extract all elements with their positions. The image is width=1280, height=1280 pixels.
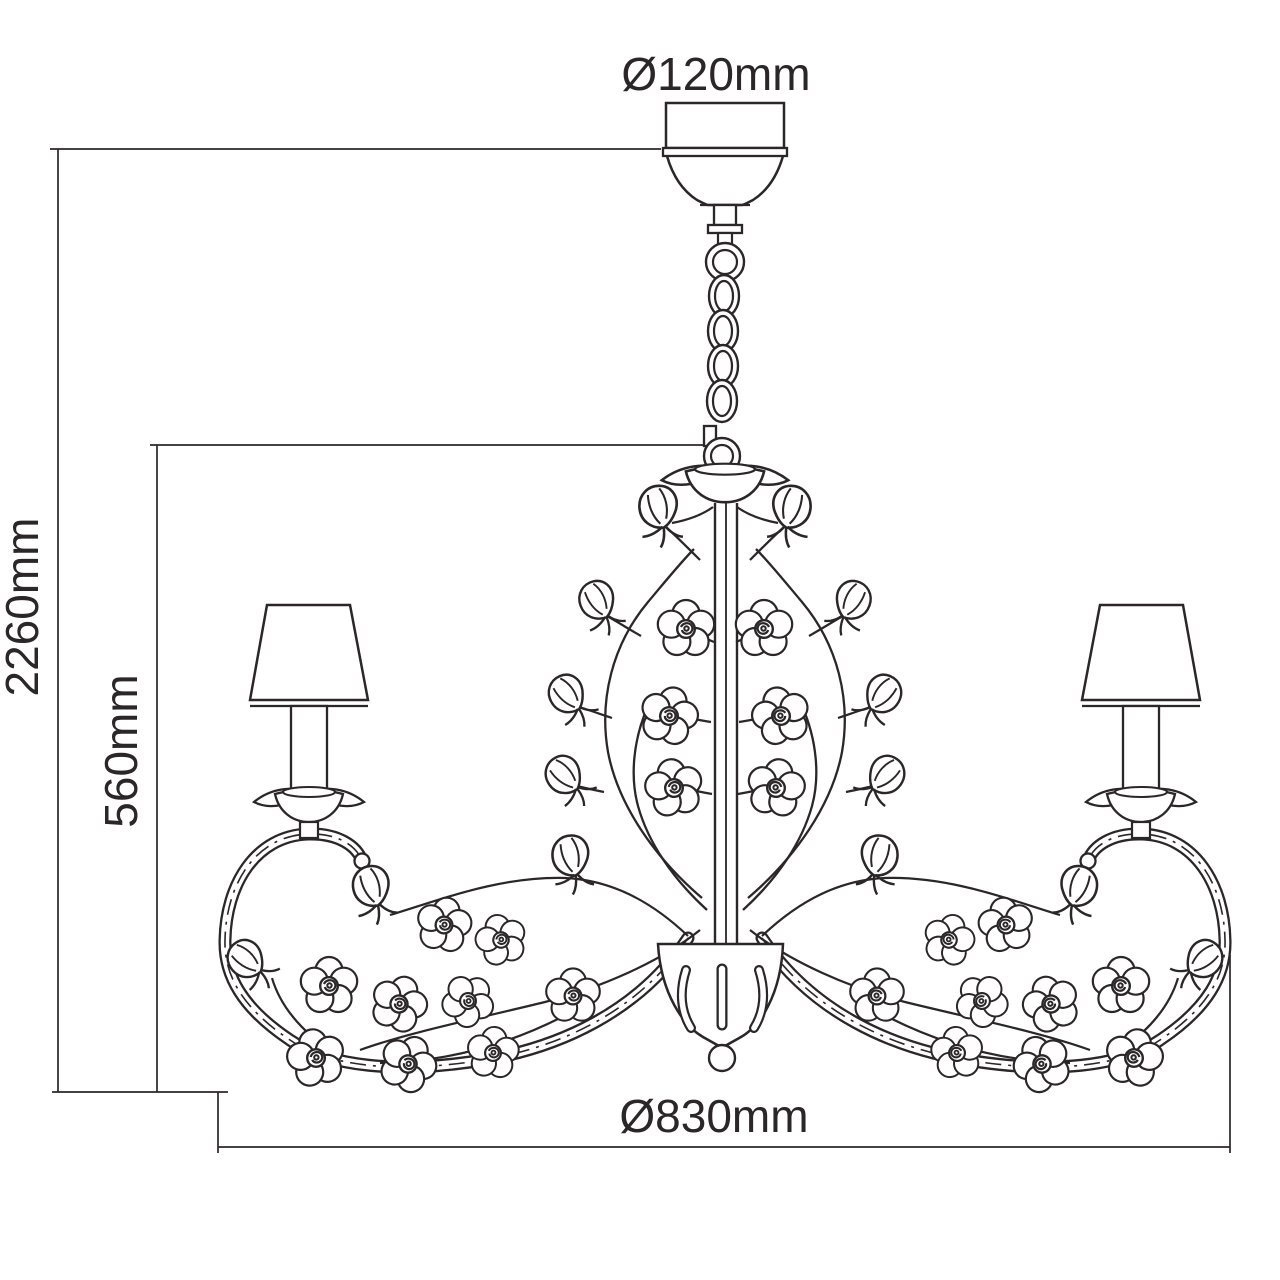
bottom-cup bbox=[658, 944, 783, 1071]
arm-assembly-right bbox=[736, 482, 1233, 1099]
diagram: Ø120mm 2260mm 560mm Ø830mm bbox=[0, 0, 1280, 1280]
label-body-diameter: Ø830mm bbox=[619, 1090, 808, 1142]
lamp-shade bbox=[250, 605, 368, 706]
dimension-body-height bbox=[150, 445, 704, 1092]
arm-connector bbox=[300, 822, 318, 838]
arm-assembly bbox=[218, 482, 715, 1099]
candle-sleeve bbox=[291, 706, 327, 796]
dimension-overall-height bbox=[50, 149, 661, 1092]
lamp-cup bbox=[254, 787, 364, 822]
ball-finial bbox=[709, 1045, 735, 1071]
chandelier-dimension-diagram: Ø120mm 2260mm 560mm Ø830mm bbox=[0, 0, 1280, 1280]
suspension-chain bbox=[704, 243, 744, 474]
label-body-height: 560mm bbox=[95, 674, 147, 827]
label-canopy-diameter: Ø120mm bbox=[621, 48, 810, 100]
label-overall-height: 2260mm bbox=[0, 518, 48, 697]
ceiling-canopy bbox=[663, 103, 787, 245]
